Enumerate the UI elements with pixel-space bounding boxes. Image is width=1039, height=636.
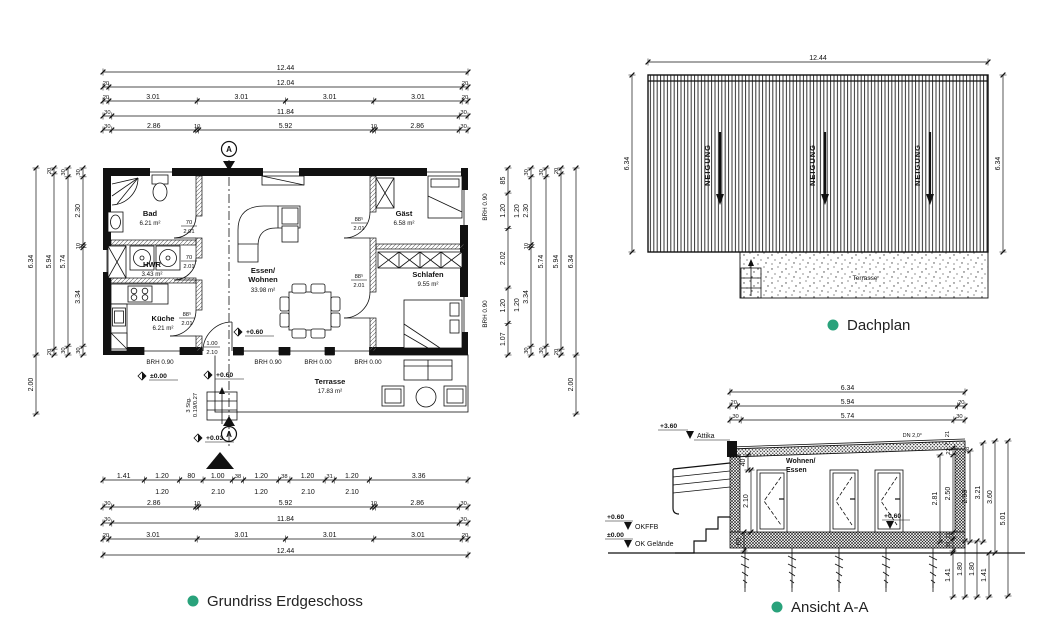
level-okffb: OKFFB xyxy=(635,524,659,531)
dim-label: 5.94 xyxy=(841,399,855,406)
dim-chain: 3.60 xyxy=(987,439,999,556)
dim-label: 3.01 xyxy=(146,532,160,539)
dim-chain: 12.44 xyxy=(101,65,471,76)
dim-label: 10 xyxy=(194,124,200,130)
dim-label: 12.44 xyxy=(277,548,295,555)
level-attika: Attika xyxy=(697,433,715,440)
dim-label: 5.94 xyxy=(46,255,53,269)
dim-chain: 6.34 xyxy=(728,385,968,396)
dim-chain: 302.86105.92102.8630 xyxy=(101,500,471,511)
door-kueche-w: 88⁵ xyxy=(183,311,192,318)
dim-chain: 1.411.20801.00381.20381.20311.203.36 xyxy=(101,473,471,484)
dim-label: 60 xyxy=(736,538,743,546)
dim-label: 12.04 xyxy=(277,80,295,87)
level-060-out: +0.60 xyxy=(216,372,233,379)
dim-chain: 302.30103.3430 xyxy=(523,166,535,358)
caption-section-label: Ansicht A-A xyxy=(791,599,869,616)
door-hwr-w: 70 xyxy=(186,255,192,261)
dim-label: 20 xyxy=(462,81,468,87)
dim-chain: 6.342.00 xyxy=(568,166,580,417)
dim-label: 2.86 xyxy=(410,500,424,507)
dim-label: 1.41 xyxy=(117,473,131,480)
room-bad-area: 6.21 m² xyxy=(140,220,161,227)
section-stairs xyxy=(673,463,730,553)
dim-label: 30 xyxy=(104,124,110,130)
dim-label: 20 xyxy=(47,168,53,174)
windows-bottom xyxy=(144,347,370,356)
bedroom-furniture xyxy=(404,300,462,348)
dim-label: 12.44 xyxy=(809,55,827,62)
roof-slope-label: DN 2,0° xyxy=(903,433,922,439)
caption-plan: Grundriss Erdgeschoss xyxy=(188,593,363,610)
dim-label: 2.02 xyxy=(500,251,507,265)
dim-label: 30 xyxy=(524,169,530,175)
dim-label: 5.74 xyxy=(60,255,67,269)
section-marker-bottom: A xyxy=(226,430,232,439)
dim-label: 30 xyxy=(539,169,545,175)
dim-label: 20 xyxy=(462,95,468,101)
dim-chain: 6.34 xyxy=(995,73,1007,255)
room-wohnen-1: Essen/ xyxy=(251,266,276,275)
dim-chain: 305.7430 xyxy=(538,166,550,358)
dim-label: 1.00 xyxy=(211,473,225,480)
dim-label: 30 xyxy=(460,501,466,507)
dim-label: 2.00 xyxy=(28,378,35,392)
sub-dim: 2.10 xyxy=(345,489,359,496)
room-hwr-area: 3.43 m² xyxy=(142,271,163,278)
dim-label: 2.81 xyxy=(932,492,939,506)
door-entry-w: 1.00 xyxy=(206,341,217,347)
room-wohnen-2: Wohnen xyxy=(248,275,278,284)
small-dim: 7 xyxy=(945,442,951,445)
dim-label: 1.20 xyxy=(500,299,507,313)
dim-label: 20 xyxy=(554,349,560,355)
dim-label: 30 xyxy=(61,347,67,353)
dim-label: 30 xyxy=(104,517,110,523)
door-bad-w: 70 xyxy=(186,220,192,226)
dim-label: 30 xyxy=(539,347,545,353)
dim-label: 20 xyxy=(958,400,964,406)
dim-label: 80 xyxy=(187,473,195,480)
dim-label: 1.20 xyxy=(254,473,268,480)
entrance-arrow xyxy=(206,452,234,469)
dim-label: 2.93 xyxy=(962,490,969,504)
dim-label: 6.34 xyxy=(28,255,35,269)
stairs-note-2: 0.19/0.27 xyxy=(193,393,199,417)
sub-dim: 1.20 xyxy=(514,298,521,312)
dim-label: 22 xyxy=(946,448,952,454)
dim-label: 10 xyxy=(76,243,82,249)
roof-terrace-label: Terrasse xyxy=(853,275,878,282)
dim-chain: 1.41 xyxy=(945,551,957,600)
dim-chain: 1.80 xyxy=(969,539,981,600)
room-terrasse: Terrasse xyxy=(315,377,346,386)
dim-label: 3.60 xyxy=(987,490,994,504)
screw-piles xyxy=(741,548,937,592)
dim-label: 1.80 xyxy=(969,562,976,576)
dim-label: 20 xyxy=(462,533,468,539)
dim-label: 30 xyxy=(61,169,67,175)
sub-dim: 2.10 xyxy=(211,489,225,496)
room-kueche: Küche xyxy=(152,314,175,323)
sub-dim: 1.20 xyxy=(155,489,169,496)
level-060-in: +0.60 xyxy=(246,329,263,336)
dim-chain: 305.7430 xyxy=(60,166,72,358)
dim-chain: 3011.8430 xyxy=(101,516,471,527)
dim-label: 3.01 xyxy=(235,94,249,101)
dim-label: 85 xyxy=(500,177,507,185)
dim-label: 2.86 xyxy=(147,500,161,507)
dim-label: 2.10 xyxy=(743,494,750,508)
slope-label: NEIGUNG xyxy=(703,144,712,186)
dim-label: 3.01 xyxy=(235,532,249,539)
dim-label: 30 xyxy=(956,414,962,420)
caption-roof-label: Dachplan xyxy=(847,317,910,334)
door-bad-h: 2.01 xyxy=(183,229,194,235)
dim-label: 3.01 xyxy=(323,532,337,539)
dim-label: 2.30 xyxy=(75,204,82,218)
dim-chain: 2.10 xyxy=(743,468,755,535)
dim-label: 20 xyxy=(103,81,109,87)
level-okffb-val: +0.60 xyxy=(607,514,624,521)
dim-chain: 3011.8430 xyxy=(101,109,471,120)
dim-label: 38 xyxy=(235,474,241,480)
brh-terrace-1: BRH 0.90 xyxy=(254,359,282,366)
section-floor-slab xyxy=(730,532,965,548)
dim-label: 1.07 xyxy=(500,332,507,346)
dim-chain: 851.202.021.201.07 xyxy=(500,166,512,358)
brh-terrace-2: BRH 0.00 xyxy=(304,359,332,366)
dim-label: 2.86 xyxy=(410,123,424,130)
dim-label: 6.34 xyxy=(841,385,855,392)
dim-label: 1.20 xyxy=(500,204,507,218)
roof-plan: NEIGUNG NEIGUNG NEIGUNG Terrasse 12.44 6… xyxy=(624,55,1007,334)
slope-label: NEIGUNG xyxy=(808,144,817,186)
dim-label: 10 xyxy=(524,243,530,249)
room-terrasse-area: 17.83 m² xyxy=(318,388,342,395)
door-schlafen-h: 2.01 xyxy=(353,283,364,289)
dim-label: 20 xyxy=(103,95,109,101)
door-gast-w: 88⁵ xyxy=(355,216,364,223)
dim-label: 30 xyxy=(104,501,110,507)
level-003: +0.03 xyxy=(206,435,223,442)
brh-right-bottom: BRH 0.90 xyxy=(482,300,489,328)
caption-bullet xyxy=(828,320,839,331)
dim-chain: 2.81 xyxy=(932,453,944,545)
dim-label: 40 xyxy=(740,459,747,467)
dim-label: 1.41 xyxy=(981,568,988,582)
dim-chain: 5.01 xyxy=(1000,439,1012,599)
dim-chain: 305.7430 xyxy=(728,413,968,424)
brh-kueche: BRH 0.90 xyxy=(146,359,174,366)
level-inner: +0.60 xyxy=(884,513,901,520)
dim-label: 1.20 xyxy=(345,473,359,480)
dim-chain: 203.013.013.013.0120 xyxy=(101,532,471,543)
dim-label: 2.86 xyxy=(147,123,161,130)
small-dim: 21 xyxy=(945,431,951,437)
dim-chain: 6.34 xyxy=(624,73,636,255)
floor-plan: A A Bad 6.21 m² HWR 3.43 m² Küche 6.21 m… xyxy=(28,65,580,610)
dim-chain: 302.30103.3430 xyxy=(75,166,87,358)
dim-label: 5.94 xyxy=(553,255,560,269)
dim-label: 11.84 xyxy=(277,109,294,116)
room-gast-area: 6.58 m² xyxy=(394,220,415,227)
sub-dim: 1.20 xyxy=(254,489,268,496)
dim-label: 3.34 xyxy=(75,290,82,304)
dim-label: 30 xyxy=(104,110,110,116)
dim-chain: 6.342.00 xyxy=(28,166,40,417)
dim-label: 30 xyxy=(76,169,82,175)
dim-label: 6.34 xyxy=(995,157,1002,171)
architectural-drawing-sheet: A A Bad 6.21 m² HWR 3.43 m² Küche 6.21 m… xyxy=(0,0,1039,636)
section-view: Wohnen/ Essen DN 2,0° +0.60 xyxy=(605,385,1025,616)
dim-label: 3.01 xyxy=(146,94,160,101)
terrace-furniture xyxy=(382,360,466,407)
section-room-label-2: Essen xyxy=(786,467,807,474)
door-schlafen-w: 88⁵ xyxy=(355,273,364,280)
dim-label: 3.01 xyxy=(411,532,425,539)
dim-label: 3.01 xyxy=(411,94,425,101)
dim-label: 5.74 xyxy=(841,413,855,420)
door-hwr-h: 2.01 xyxy=(183,264,194,270)
section-doors xyxy=(757,470,903,532)
dim-chain: 1.41 xyxy=(981,551,993,600)
dim-label: 30 xyxy=(460,517,466,523)
dim-label: 31 xyxy=(326,474,332,480)
door-gast-h: 2.01 xyxy=(353,226,364,232)
dim-label: 20 xyxy=(554,168,560,174)
dim-label: 12.44 xyxy=(277,65,295,72)
dim-chain: 205.9420 xyxy=(46,166,58,358)
dim-chain: 3.21 xyxy=(975,441,987,545)
section-wall-left xyxy=(730,455,740,532)
dim-label: 21 xyxy=(946,532,952,538)
dim-chain: 2012.0420 xyxy=(101,80,471,91)
dim-label: 1.20 xyxy=(155,473,169,480)
sub-dim: 1.20 xyxy=(514,204,521,218)
room-wohnen-area: 33.98 m² xyxy=(251,287,275,294)
dim-label: 38 xyxy=(281,474,287,480)
dim-chain: 205.9420 xyxy=(553,166,565,358)
dim-label: 5.92 xyxy=(279,123,293,130)
dim-chain: 203.013.013.013.0120 xyxy=(101,94,471,105)
slope-label: NEIGUNG xyxy=(913,144,922,186)
roof-surface xyxy=(648,75,988,252)
dim-label: 2.30 xyxy=(523,204,530,218)
brh-terrace-3: BRH 0.00 xyxy=(354,359,382,366)
dim-label: 10 xyxy=(371,124,377,130)
brh-right-top: BRH 0.90 xyxy=(482,193,489,221)
dim-label: 3.01 xyxy=(323,94,337,101)
dim-label: 30 xyxy=(524,347,530,353)
room-bad: Bad xyxy=(143,209,158,218)
level-zero: ±0.00 xyxy=(150,373,167,380)
dim-chain: 12.44 xyxy=(101,548,471,559)
section-room-label-1: Wohnen/ xyxy=(786,458,815,465)
exterior-stairs xyxy=(206,387,237,469)
door-entry-h: 2.10 xyxy=(206,350,217,356)
dim-chain: 12.44 xyxy=(646,55,991,66)
caption-plan-label: Grundriss Erdgeschoss xyxy=(207,593,363,610)
dim-label: 20 xyxy=(47,349,53,355)
dim-label: 1.41 xyxy=(945,568,952,582)
dim-label: 30 xyxy=(460,124,466,130)
dim-label: 6.34 xyxy=(624,157,631,171)
room-kueche-area: 6.21 m² xyxy=(153,325,174,332)
caption-bullet xyxy=(772,602,783,613)
dim-label: 30 xyxy=(76,347,82,353)
wardrobe xyxy=(378,252,462,268)
caption-section: Ansicht A-A xyxy=(772,599,869,616)
dim-label: 20 xyxy=(103,533,109,539)
dim-label: 5.92 xyxy=(279,500,293,507)
dim-label: 20 xyxy=(730,400,736,406)
dim-label: 5.01 xyxy=(1000,512,1007,526)
dim-label: 1.20 xyxy=(301,473,315,480)
room-schlafen-area: 9.55 m² xyxy=(418,281,439,288)
dim-chain: 205.9420 xyxy=(728,399,968,410)
stairs-note-1: 3 Stg. xyxy=(186,397,192,413)
dim-label: 3.36 xyxy=(412,473,426,480)
room-gast: Gäst xyxy=(396,209,413,218)
dim-label: 10 xyxy=(371,501,377,507)
dim-label: 2.00 xyxy=(568,378,575,392)
dim-label: 10 xyxy=(194,501,200,507)
level-ground: OK Gelände xyxy=(635,541,674,548)
dim-label: 3.34 xyxy=(523,290,530,304)
dim-label: 39 xyxy=(946,542,952,548)
dim-label: 1.80 xyxy=(957,562,964,576)
level-attika-val: +3.60 xyxy=(660,423,677,430)
dim-label: 6.34 xyxy=(568,255,575,269)
sub-dim: 2.10 xyxy=(301,489,315,496)
dim-label: 30 xyxy=(460,110,466,116)
caption-roof: Dachplan xyxy=(828,317,911,334)
caption-bullet xyxy=(188,596,199,607)
room-schlafen: Schlafen xyxy=(412,270,444,279)
door-kueche-h: 2.01 xyxy=(181,321,192,327)
dim-label: 5.74 xyxy=(538,255,545,269)
section-marker-top: A xyxy=(226,145,232,154)
level-ground-val: ±0.00 xyxy=(607,532,624,539)
room-hwr: HWR xyxy=(143,260,161,269)
dim-label: 30 xyxy=(732,414,738,420)
drawing-canvas: A A Bad 6.21 m² HWR 3.43 m² Küche 6.21 m… xyxy=(0,0,1039,636)
dim-label: 2.50 xyxy=(945,487,952,501)
dim-chain: 302.86105.92102.8630 xyxy=(101,123,471,134)
dim-label: 11.84 xyxy=(277,516,294,523)
dim-label: 3.21 xyxy=(975,486,982,500)
